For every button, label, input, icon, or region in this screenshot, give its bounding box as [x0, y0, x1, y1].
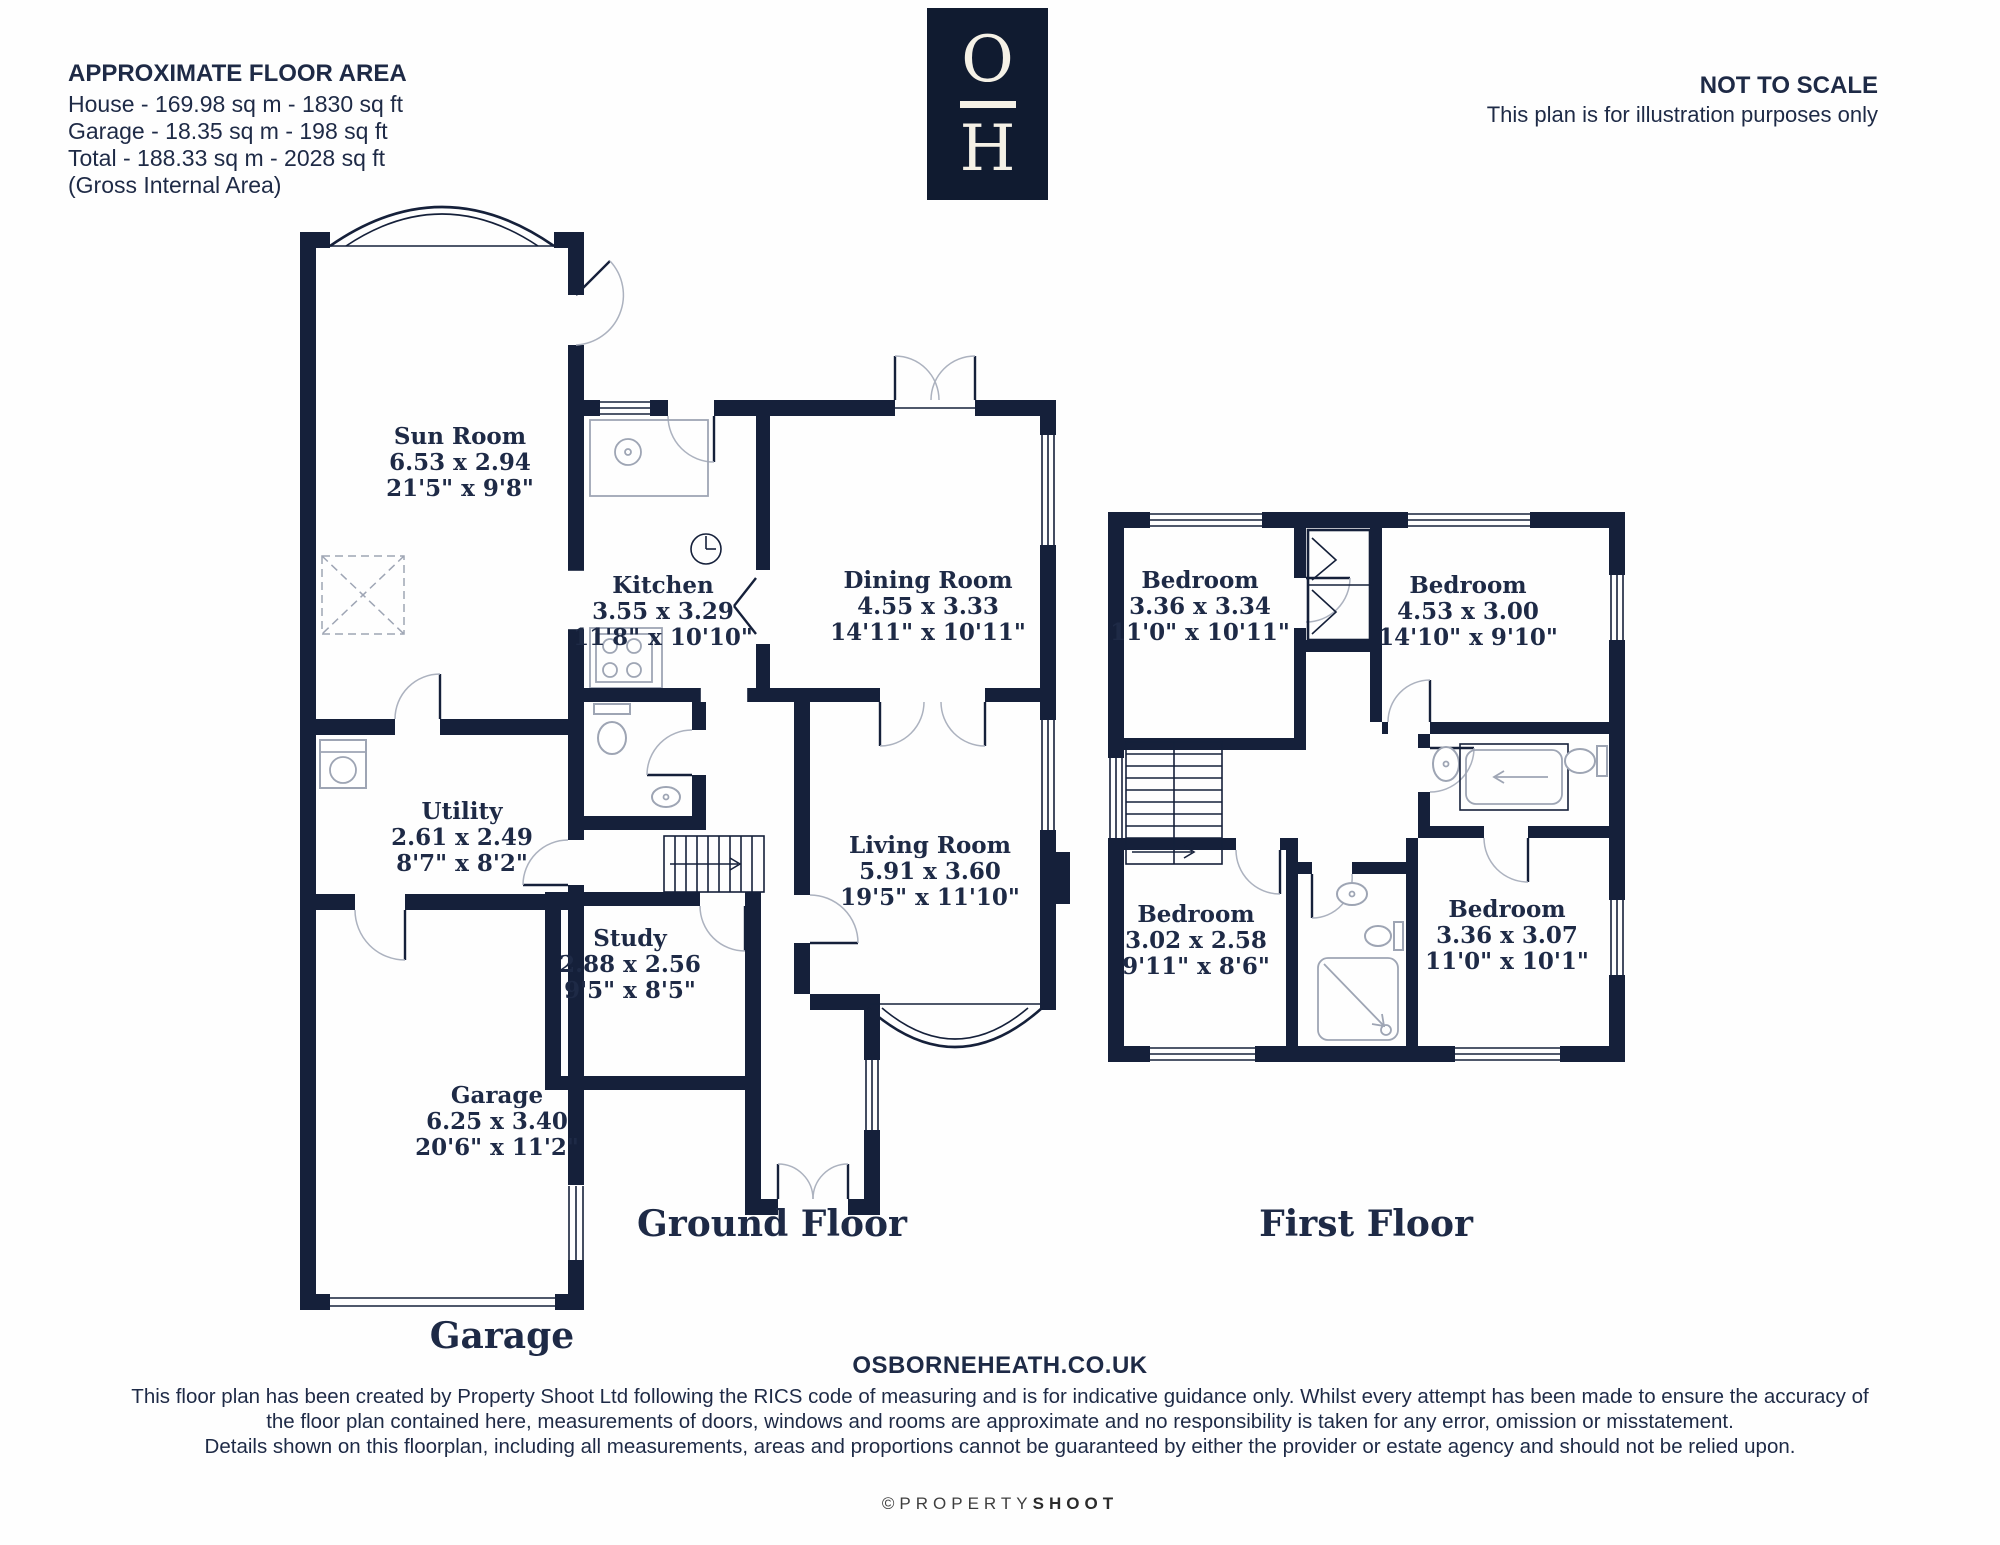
credit-suffix: SHOOT — [1033, 1494, 1118, 1513]
bedroom2-side-window — [1611, 575, 1623, 640]
kitchen-window — [600, 402, 650, 414]
bay-window — [868, 1004, 1042, 1047]
label-bedroom-3: Bedroom 3.02 x 2.58 9'11" x 8'6" — [1122, 902, 1270, 980]
shower-toilet-icon — [1365, 922, 1403, 950]
logo-divider — [960, 101, 1016, 108]
dining-walls — [734, 416, 1070, 1010]
dining-window — [1042, 435, 1054, 545]
porch-walls — [745, 1010, 880, 1215]
bedroom4-side-window — [1611, 900, 1623, 975]
shower-sink-icon — [1337, 883, 1367, 905]
rear-wall — [584, 356, 1056, 462]
bedroom3-window — [1150, 1048, 1255, 1060]
landing-window — [1110, 758, 1122, 838]
bedroom4-window — [1455, 1048, 1560, 1060]
bathroom-toilet-icon — [1565, 746, 1607, 776]
disclaimer-line-1: This floor plan has been created by Prop… — [0, 1384, 2000, 1409]
label-bedroom-2: Bedroom 4.53 x 3.00 14'10" x 9'10" — [1378, 573, 1558, 651]
shower-icon — [1318, 958, 1398, 1040]
bathroom-fixtures — [1433, 744, 1607, 810]
first-floor-title: First Floor — [1259, 1205, 1473, 1243]
logo-letter-o: O — [961, 28, 1013, 92]
closets — [1308, 530, 1370, 640]
disclaimer-line-2: the floor plan contained here, measureme… — [0, 1409, 2000, 1434]
floor-area-house: House - 169.98 sq m - 1830 sq ft — [68, 91, 407, 118]
shower-room-fixtures — [1318, 883, 1403, 1040]
propertyshoot-credit: ©PROPERTYSHOOT — [0, 1494, 2000, 1514]
kitchen-fixtures — [584, 420, 770, 702]
sink-icon — [652, 787, 680, 807]
label-kitchen: Kitchen 3.55 x 3.29 11'8" x 10'10" — [573, 573, 753, 651]
website-link[interactable]: OSBORNEHEATH.CO.UK — [852, 1352, 1147, 1380]
credit-prefix: ©PROPERTY — [882, 1494, 1033, 1513]
floor-area-title: APPROXIMATE FLOOR AREA — [68, 60, 407, 87]
disclaimer-line-3: Details shown on this floorplan, includi… — [0, 1434, 2000, 1459]
label-bedroom-1: Bedroom 3.36 x 3.34 11'0" x 10'11" — [1110, 568, 1290, 646]
living-window — [1042, 720, 1054, 830]
label-garage: Garage 6.25 x 3.40 20'6" x 11'2" — [415, 1083, 579, 1161]
bathroom-sink-icon — [1433, 747, 1459, 781]
scale-notice: NOT TO SCALE This plan is for illustrati… — [1487, 72, 1878, 130]
label-study: Study 2.88 x 2.56 9'5" x 8'5" — [559, 926, 701, 1004]
rooflight-icon — [322, 556, 404, 634]
french-doors — [895, 356, 975, 408]
ground-floor-plan — [290, 160, 1090, 1320]
bath-icon — [1460, 744, 1568, 810]
bedroom2-window — [1408, 514, 1530, 526]
floor-area-garage: Garage - 18.35 sq m - 198 sq ft — [68, 118, 407, 145]
floorplan-page: APPROXIMATE FLOOR AREA House - 169.98 sq… — [0, 0, 2000, 1545]
label-living-room: Living Room 5.91 x 3.60 19'5" x 11'10" — [840, 833, 1020, 911]
label-sun-room: Sun Room 6.53 x 2.94 21'5" x 9'8" — [386, 424, 534, 502]
ground-floor-title: Ground Floor — [637, 1205, 907, 1243]
porch-window — [866, 1060, 878, 1130]
scale-notice-title: NOT TO SCALE — [1487, 72, 1878, 100]
label-utility: Utility 2.61 x 2.49 8'7" x 8'2" — [391, 799, 533, 877]
disclaimer-text: This floor plan has been created by Prop… — [0, 1384, 2000, 1459]
staircase-ground — [664, 836, 764, 892]
label-bedroom-4: Bedroom 3.36 x 3.07 11'0" x 10'1" — [1425, 897, 1589, 975]
label-dining-room: Dining Room 4.55 x 3.33 14'11" x 10'11" — [830, 568, 1026, 646]
garage-window — [569, 1186, 583, 1260]
garage-walls — [300, 1186, 584, 1310]
scale-notice-subtitle: This plan is for illustration purposes o… — [1487, 100, 1878, 130]
garage-title: Garage — [430, 1317, 574, 1355]
toilet-icon — [594, 704, 630, 754]
bedroom1-window — [1150, 514, 1262, 526]
wc-walls — [584, 702, 706, 830]
washing-machine-icon — [320, 740, 366, 788]
front-door — [778, 1164, 848, 1199]
extractor-fan-icon — [691, 534, 721, 564]
